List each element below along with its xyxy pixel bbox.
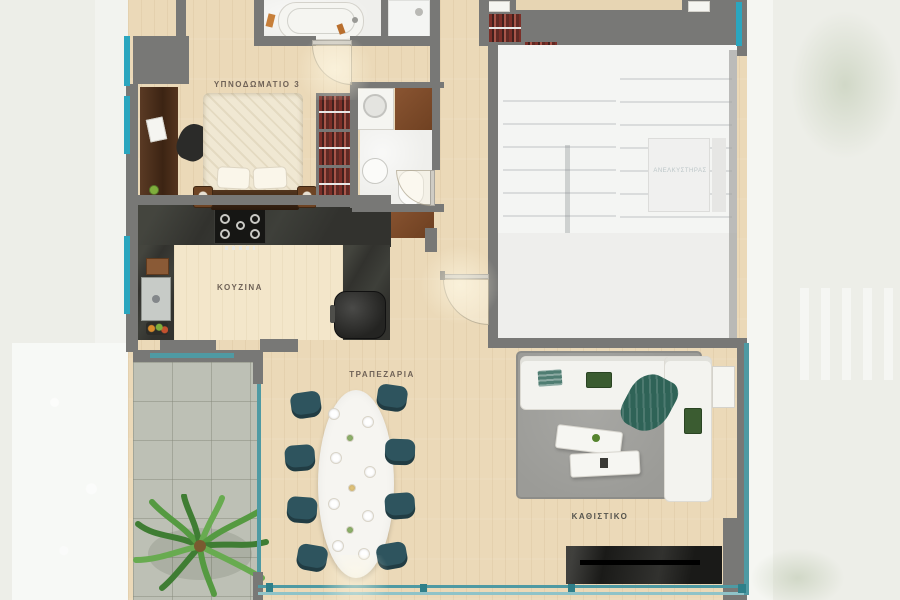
window [124, 236, 130, 314]
desk-plant-icon [149, 185, 159, 195]
wall [350, 36, 440, 46]
elevator-label: ΑΝΕΛΚΥΣΤΗΡΑΣ [640, 168, 720, 174]
wall [479, 0, 489, 46]
table-plant-icon [592, 434, 600, 442]
refrigerator-handle [330, 305, 335, 323]
dining-chair [385, 438, 416, 465]
floor-plan: ΑΝΕΛΚΥΣΤΗΡΑΣ [0, 0, 900, 600]
sliding-door [150, 353, 234, 358]
window-mullion [568, 584, 575, 592]
cooktop [214, 209, 266, 244]
staircase-flight-left [503, 100, 616, 233]
living-label: ΚΑΘΙΣΤΙΚΟ [548, 512, 652, 521]
window-mullion [420, 584, 427, 592]
wall [488, 338, 747, 348]
kitchen-label: ΚΟΥΖΙΝΑ [190, 283, 290, 292]
wall [425, 228, 437, 252]
door-handle-icon [440, 271, 445, 280]
elevator-cabin [648, 138, 710, 212]
wall [260, 339, 298, 352]
vegetable-basket [146, 322, 168, 335]
sidewalk-right [747, 0, 773, 600]
shrub-faded-bottom-right [750, 548, 845, 600]
elevator-shaft [712, 138, 726, 212]
side-table [712, 366, 735, 408]
dining-chair [284, 444, 316, 472]
stair-divider-wall [565, 145, 570, 237]
soundbar [580, 560, 700, 565]
wall [381, 0, 388, 40]
sofa-cushion [586, 372, 612, 388]
bathtub-faucet [352, 17, 358, 23]
tree-faded-top-right [790, 10, 900, 160]
wall [160, 340, 216, 353]
glass-wall [257, 384, 261, 572]
bathroom-door [312, 40, 352, 45]
wall [254, 36, 316, 46]
top-wardrobe-shelf [516, 0, 682, 10]
tv-console [566, 546, 722, 584]
swimming-pool [27, 353, 119, 600]
wall [488, 42, 498, 348]
shower-head-icon [415, 8, 423, 16]
crosswalk [800, 288, 900, 380]
wall [350, 82, 358, 208]
wall [133, 36, 189, 84]
bed-pillow [216, 166, 250, 190]
window [744, 343, 749, 595]
window-mullion [738, 584, 746, 593]
window [124, 36, 130, 86]
window-mullion [266, 583, 273, 592]
window [124, 96, 130, 154]
window-band [258, 585, 747, 588]
refrigerator [334, 291, 386, 339]
lobby-floor [498, 233, 737, 338]
palm-tree [126, 494, 274, 600]
kitchen-floor [174, 245, 343, 340]
bed-pillow [252, 166, 287, 190]
kitchen-faucet [152, 295, 160, 303]
desk [140, 87, 178, 203]
entry-door [443, 274, 489, 279]
dining-chair [375, 383, 408, 413]
cutting-board [146, 258, 169, 275]
sofa-cushion [537, 369, 562, 387]
dining-chair [286, 496, 318, 524]
table-decor-icon [600, 458, 608, 468]
dining-label: ΤΡΑΠΕΖΑΡΙΑ [330, 370, 434, 379]
hanging-clothes [489, 14, 521, 42]
window-band [258, 592, 747, 595]
wc-sink [362, 158, 388, 184]
dining-chair [384, 492, 416, 520]
wardrobe-bin [488, 1, 510, 12]
window [736, 2, 742, 46]
wardrobe-bin [688, 1, 710, 12]
washing-machine-door [363, 94, 387, 118]
wc-door [430, 170, 435, 206]
wall [350, 82, 444, 88]
sofa-cushion [684, 408, 702, 434]
cooktop-knobs [225, 246, 255, 250]
wall [432, 86, 440, 170]
common-right-wall [729, 50, 737, 338]
bedroom3-label: ΥΠΝΟΔΩΜΑΤΙΟ 3 [192, 80, 322, 89]
wall [176, 0, 186, 40]
wall [253, 350, 263, 384]
